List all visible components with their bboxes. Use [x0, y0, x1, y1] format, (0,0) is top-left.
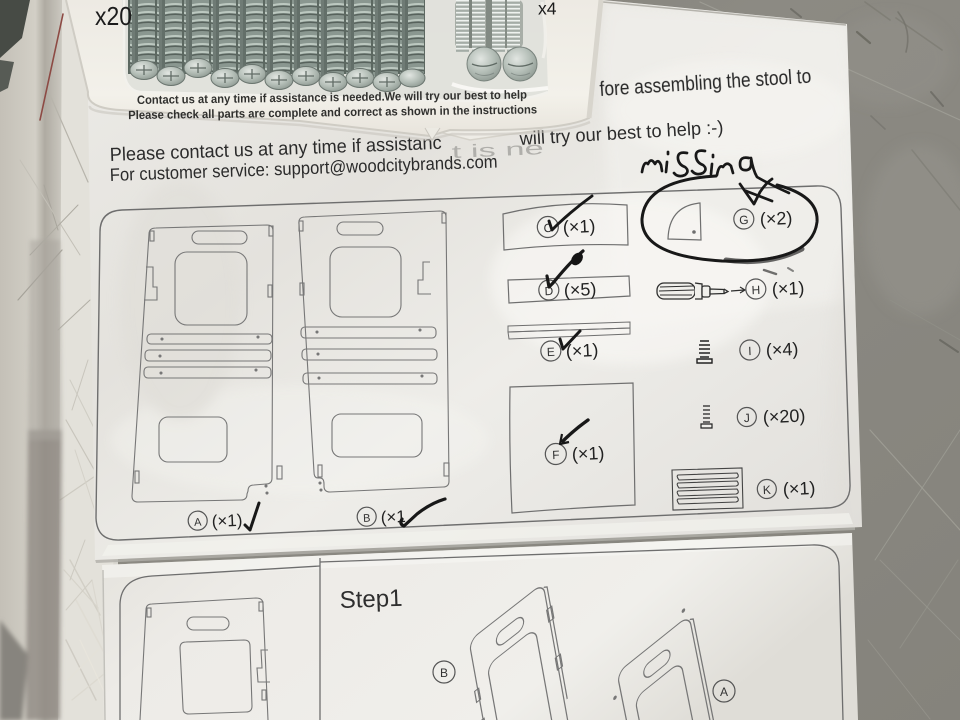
svg-text:(×1): (×1): [562, 216, 595, 237]
svg-text:(×5): (×5): [563, 279, 596, 300]
svg-text:(×4): (×4): [765, 339, 798, 360]
svg-text:H: H: [751, 283, 760, 297]
svg-text:(×1): (×1): [782, 478, 815, 499]
svg-text:(×20): (×20): [762, 405, 805, 427]
svg-text:A: A: [720, 685, 728, 699]
svg-text:B: B: [363, 513, 371, 525]
svg-text:x4: x4: [538, 0, 557, 19]
svg-text:F: F: [552, 448, 560, 462]
svg-text:(×1): (×1): [771, 278, 804, 299]
svg-text:A: A: [194, 516, 203, 528]
svg-text:(×1): (×1): [571, 443, 604, 464]
svg-text:(×1): (×1): [211, 511, 243, 531]
svg-text:B: B: [440, 666, 448, 680]
svg-text:Step1: Step1: [339, 585, 403, 614]
svg-text:I: I: [748, 344, 752, 358]
svg-text:K: K: [763, 483, 772, 497]
svg-text:E: E: [547, 345, 556, 359]
svg-text:J: J: [744, 411, 751, 425]
svg-text:G: G: [739, 213, 749, 227]
svg-text:(×2): (×2): [759, 208, 792, 229]
svg-text:x20: x20: [95, 1, 132, 31]
